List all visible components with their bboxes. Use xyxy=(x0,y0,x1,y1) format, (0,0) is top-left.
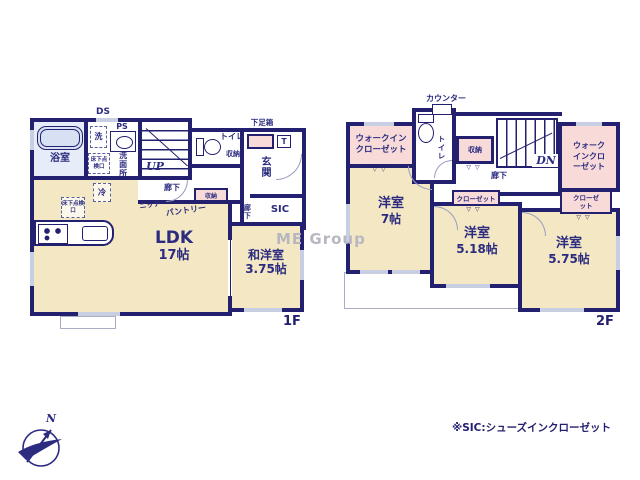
floor-hatch-ldk: 床下点検口 xyxy=(61,197,85,218)
up-label: UP xyxy=(142,160,168,173)
washitsu-label: 和洋室 3.75帖 xyxy=(232,248,300,277)
wic-left-label: ウォークインクローゼット xyxy=(353,134,409,156)
window-mark xyxy=(446,284,490,288)
closet-mid: クローゼット xyxy=(452,190,500,206)
window-mark xyxy=(30,252,34,286)
sliding-door-line xyxy=(230,240,231,296)
toilet-bowl-2f xyxy=(418,123,434,143)
room575-label: 洋室 5.75帖 xyxy=(532,236,606,266)
window-mark xyxy=(364,122,394,126)
closet-door-marks: ▽▽ xyxy=(460,164,490,171)
dn-label: DN xyxy=(532,154,560,167)
toilet-1f-label: トイレ xyxy=(216,132,248,142)
shoebox-label: 下足箱 xyxy=(244,118,280,127)
window-mark xyxy=(392,270,420,274)
room575-size: 5.75帖 xyxy=(532,252,606,266)
bathtub-icon xyxy=(37,126,83,150)
genkan-label: 玄関 xyxy=(258,148,270,186)
wic-right-label: ウォークインクローゼット xyxy=(570,141,608,172)
floor2-tag: 2F xyxy=(596,314,614,329)
window-mark xyxy=(540,308,584,312)
storage-2f: 収納 xyxy=(456,136,494,164)
room7-size: 7帖 xyxy=(354,212,428,226)
floor-hatch-washroom: 床下点検口 xyxy=(88,153,110,174)
closet-door-marks: ▽▽ xyxy=(460,206,490,213)
floor-hatch-label: 床下点検口 xyxy=(89,157,109,170)
closet-right: クローゼット xyxy=(560,190,612,214)
compass-icon: N xyxy=(14,412,68,472)
room518-label: 洋室 5.18帖 xyxy=(440,226,514,256)
toilet-storage-label: 収納 xyxy=(218,150,248,158)
counter-label: カウンター xyxy=(418,94,474,104)
sic-footnote: ※SIC:シューズインクローゼット xyxy=(452,420,611,435)
hall-small-label: 廊下 xyxy=(243,200,251,224)
shoebox xyxy=(247,134,274,149)
washing-machine-box: 洗 xyxy=(90,126,107,148)
floorplan-canvas: 浴室 洗 PS 洗面所 床下点検口 DS UP 廊下 トイレ 収納 下足箱 T … xyxy=(0,0,640,480)
fridge-box: 冷 xyxy=(93,183,111,202)
hall-storage: 収納 xyxy=(194,188,228,202)
watermark: ME Group xyxy=(276,230,366,248)
compass-north-label: N xyxy=(44,412,58,425)
counter-box xyxy=(432,104,452,115)
t-storage-box: T xyxy=(277,135,291,148)
window-mark xyxy=(244,308,282,312)
kitchen-counter xyxy=(34,220,114,246)
closet-right-label: クローゼット xyxy=(571,194,601,210)
wic-left: ウォークインクローゼット xyxy=(346,122,416,168)
toilet-2f-label: トイレ xyxy=(437,132,446,164)
ldk-name: LDK xyxy=(138,228,210,248)
washing-machine-label: 洗 xyxy=(95,132,103,141)
wic-right: ウォークインクローゼット xyxy=(558,122,620,192)
room7-name: 洋室 xyxy=(354,196,428,212)
toilet-tank-2f xyxy=(418,114,434,123)
t-storage-label: T xyxy=(281,137,286,146)
window-mark xyxy=(300,250,304,280)
window-mark xyxy=(30,130,34,150)
room7-label: 洋室 7帖 xyxy=(354,196,428,226)
ds-label: DS xyxy=(90,107,116,118)
porch-step xyxy=(60,316,116,329)
storage-2f-label: 収納 xyxy=(468,145,482,155)
corridor-2f-label: 廊下 xyxy=(484,171,514,181)
washroom-label: 洗面所 xyxy=(118,150,128,178)
ldk-size: 17帖 xyxy=(138,248,210,264)
bathroom-label: 浴室 xyxy=(40,153,80,165)
window-mark xyxy=(360,270,388,274)
window-mark xyxy=(576,122,602,126)
floor-hatch-ldk-label: 床下点検口 xyxy=(62,201,84,214)
floor1-tag: 1F xyxy=(283,314,301,329)
washitsu-name: 和洋室 xyxy=(232,248,300,262)
window-mark xyxy=(96,118,118,122)
hall-storage-label: 収納 xyxy=(205,191,217,200)
room575-name: 洋室 xyxy=(532,236,606,252)
closet-mid-label: クローゼット xyxy=(457,193,496,203)
stove-icon xyxy=(38,224,68,244)
room518-size: 5.18帖 xyxy=(440,242,514,256)
window-mark xyxy=(616,236,620,270)
sic-label: SIC xyxy=(262,204,298,216)
washitsu-size: 3.75帖 xyxy=(232,262,300,276)
sic-divider-wall xyxy=(250,194,302,198)
kitchen-sink-icon xyxy=(82,226,108,241)
closet-door-marks: ▽▽ xyxy=(570,214,600,221)
ldk-label: LDK 17帖 xyxy=(138,228,210,264)
fridge-label: 冷 xyxy=(98,188,106,197)
closet-door-marks: ▽▽ xyxy=(366,166,396,173)
vanity-sink xyxy=(110,131,136,152)
toilet-tank-1f xyxy=(196,138,204,156)
